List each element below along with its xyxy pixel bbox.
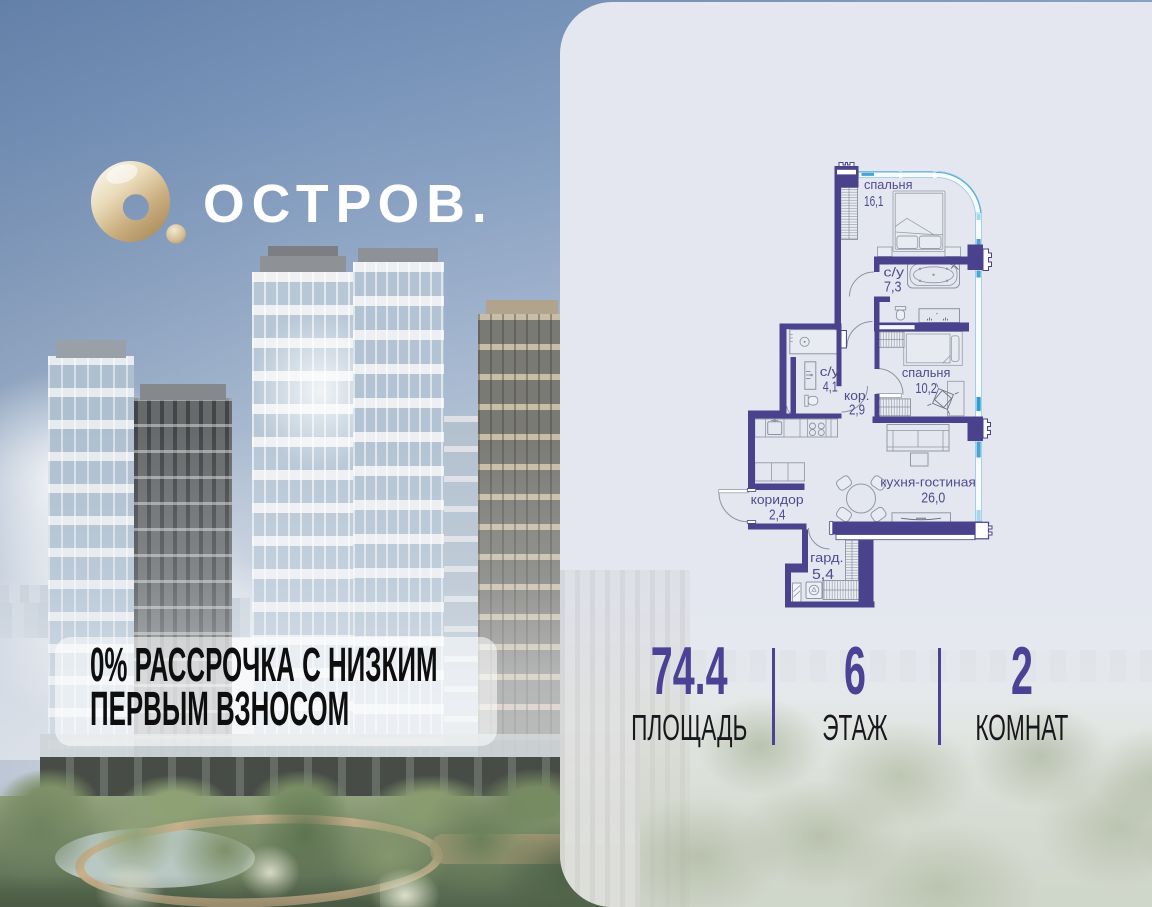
svg-text:гард.: гард. [810, 551, 844, 565]
svg-text:2,9: 2,9 [849, 402, 865, 419]
svg-text:спальня: спальня [902, 366, 951, 380]
svg-text:2,4: 2,4 [769, 506, 786, 523]
svg-text:26,0: 26,0 [921, 490, 945, 507]
svg-text:с/у: с/у [820, 365, 840, 379]
svg-text:кухня-гостиная: кухня-гостиная [880, 476, 976, 490]
svg-text:спальня: спальня [864, 178, 913, 192]
svg-text:с/у: с/у [884, 266, 905, 280]
svg-text:7,3: 7,3 [884, 279, 902, 296]
svg-text:10,2: 10,2 [915, 380, 937, 397]
svg-text:коридор: коридор [751, 493, 804, 507]
svg-text:5,4: 5,4 [812, 566, 834, 583]
svg-text:4,1: 4,1 [823, 379, 838, 396]
svg-text:16,1: 16,1 [864, 193, 884, 210]
